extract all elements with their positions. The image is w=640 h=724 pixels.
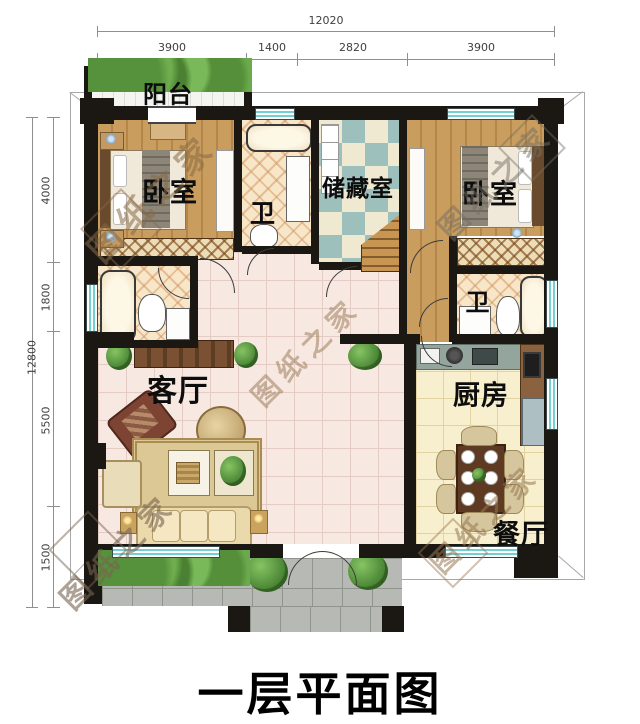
wall [98,332,134,342]
dim-top-seg-1: 3900 [146,41,198,54]
porch-bush [246,552,288,592]
dim-left-seg-3: 5500 [40,395,53,447]
label-bath-top: 卫 [250,194,276,230]
wall [311,120,319,264]
potted-plant [348,342,382,370]
dining-chair [436,484,456,514]
wall [399,120,407,342]
dim-left-total: 12800 [26,332,39,384]
label-living-room: 客厅 [147,366,209,410]
window [255,108,295,120]
sofa-cushion [180,510,208,542]
dim-line-top-total [98,31,555,32]
wall-column [80,98,114,124]
label-bath-right: 卫 [466,283,491,318]
tick [47,262,60,263]
porch-pillar [228,606,250,632]
wall [544,106,558,558]
sink [472,348,498,365]
wardrobe [457,238,546,266]
wall-pier [98,443,106,469]
wall [84,106,98,558]
wall [234,120,242,252]
tick [47,506,60,507]
potted-plant [234,342,258,368]
wall [449,266,544,274]
toilet [138,294,166,332]
tick [47,117,60,118]
wall [404,334,416,544]
centerpiece [472,468,486,482]
floor-plan-canvas: 12020 3900 1400 2820 3900 12800 4000 180… [0,0,640,724]
dim-line-left-segments [53,118,54,608]
washbasin [166,308,190,340]
lamp [106,134,116,144]
wall-column [538,98,564,124]
gas-stove [523,352,541,378]
lamp [254,514,263,523]
tick [297,53,298,66]
plate [484,450,498,464]
toilet [496,296,520,336]
plan-title: 一层平面图 [0,658,640,724]
wicker-tray [176,462,200,484]
plate [461,450,475,464]
window [447,108,515,120]
vanity [286,156,310,222]
dining-chair [461,426,497,446]
flowers [220,456,246,486]
pillow [113,155,127,187]
tick [47,607,60,608]
wall [190,266,198,348]
tick [554,26,555,37]
dim-top-seg-2: 1400 [246,41,298,54]
wall [242,246,319,254]
window [86,284,98,332]
cabinet [409,148,425,230]
wall [452,334,544,344]
dim-left-seg-1: 4000 [40,165,53,217]
pillow [518,189,532,223]
dim-top-seg-4: 3900 [455,41,507,54]
dim-left-seg-4: 1500 [40,532,53,584]
dim-left-seg-2: 1800 [40,272,53,324]
tick [554,53,555,66]
fridge [522,398,545,446]
sofa-cushion [208,510,236,542]
label-storage: 储藏室 [322,169,394,203]
bathtub [246,124,312,152]
tick [47,331,60,332]
tick [26,117,38,118]
tick [407,53,408,66]
dining-chair [436,450,456,480]
label-kitchen: 厨房 [453,374,509,413]
porch-step [250,606,382,632]
window [546,378,558,430]
dim-top-total: 12020 [300,14,352,27]
tick [97,26,98,37]
lamp [512,228,522,238]
wall [449,236,457,342]
tick [26,607,38,608]
window [546,280,558,328]
label-balcony: 阳台 [143,75,193,110]
porch-pillar [382,606,404,632]
dim-top-seg-3: 2820 [327,41,379,54]
